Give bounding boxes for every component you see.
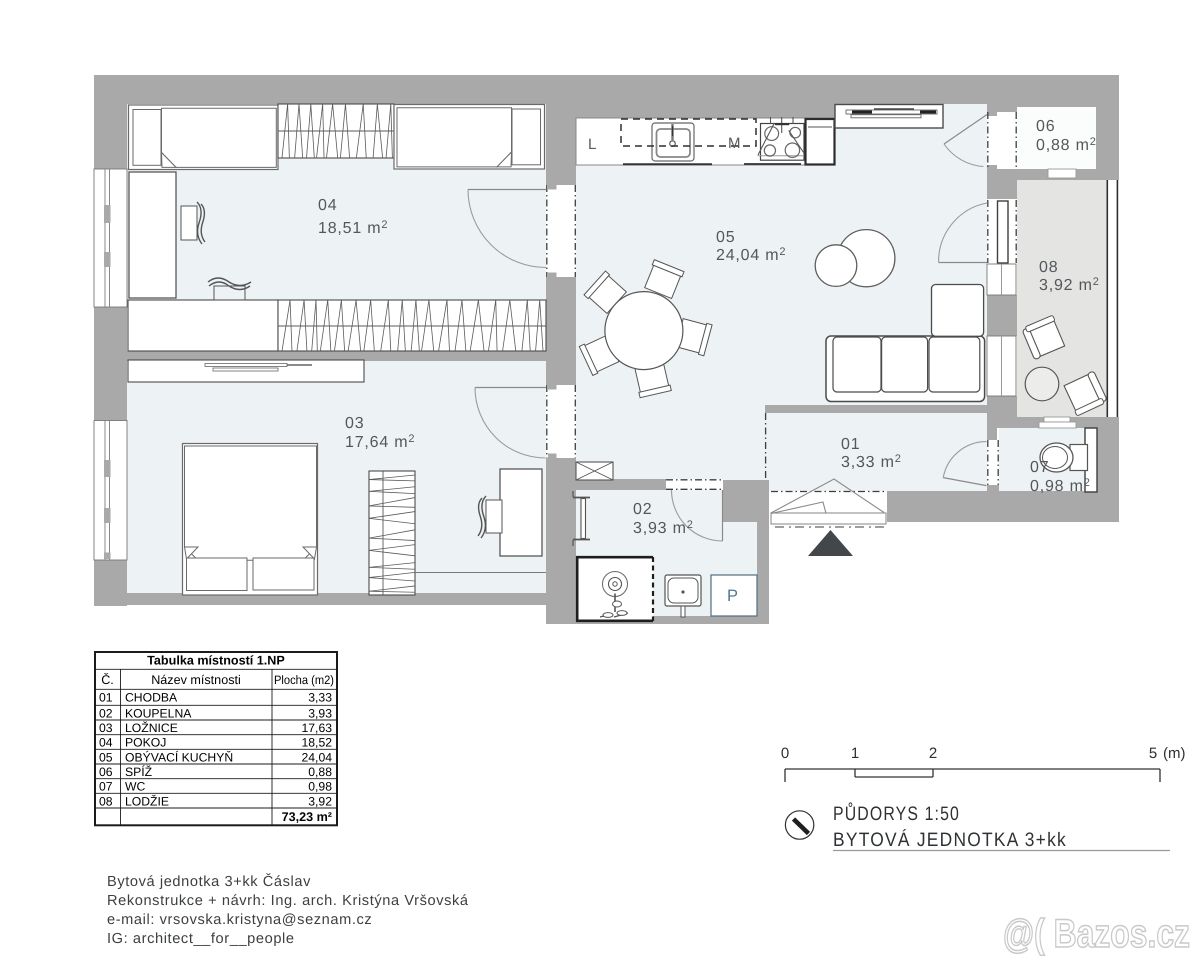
svg-text:@( Bazos.cz: @( Bazos.cz — [1003, 912, 1190, 956]
svg-text:5: 5 — [1149, 745, 1157, 762]
svg-text:3,92 m2: 3,92 m2 — [1039, 276, 1100, 294]
svg-text:3,92: 3,92 — [308, 794, 332, 808]
svg-text:0: 0 — [781, 745, 789, 762]
svg-text:17,64 m2: 17,64 m2 — [345, 433, 415, 451]
svg-text:3,93 m2: 3,93 m2 — [633, 519, 694, 537]
svg-text:P: P — [727, 587, 738, 605]
svg-text:Bytová jednotka 3+kk Čáslav: Bytová jednotka 3+kk Čáslav — [107, 873, 311, 890]
svg-text:1: 1 — [851, 745, 859, 762]
svg-text:0,88 m2: 0,88 m2 — [1036, 136, 1097, 154]
svg-text:03: 03 — [345, 415, 364, 432]
svg-text:3,93: 3,93 — [308, 706, 332, 720]
svg-text:04: 04 — [99, 736, 113, 750]
svg-text:17,63: 17,63 — [302, 721, 333, 735]
svg-text:18,51 m2: 18,51 m2 — [318, 219, 388, 237]
svg-text:03: 03 — [99, 721, 113, 735]
svg-text:KOUPELNA: KOUPELNA — [125, 706, 192, 720]
svg-text:24,04 m2: 24,04 m2 — [716, 246, 786, 264]
svg-text:24,04: 24,04 — [302, 750, 333, 764]
svg-text:06: 06 — [1036, 118, 1055, 135]
svg-text:WC: WC — [125, 780, 146, 794]
svg-text:73,23 m²: 73,23 m² — [282, 810, 332, 824]
svg-text:Tabulka místností 1.NP: Tabulka místností 1.NP — [147, 654, 285, 668]
svg-text:3,33: 3,33 — [308, 690, 332, 704]
svg-text:L: L — [588, 136, 596, 153]
svg-text:06: 06 — [99, 765, 113, 779]
svg-text:08: 08 — [1039, 259, 1058, 276]
svg-text:BYTOVÁ JEDNOTKA 3+kk: BYTOVÁ JEDNOTKA 3+kk — [833, 829, 1067, 851]
svg-text:02: 02 — [633, 501, 652, 518]
svg-text:02: 02 — [99, 706, 113, 720]
svg-text:Rekonstrukce + návrh: Ing. arc: Rekonstrukce + návrh: Ing. arch. Kristýn… — [107, 893, 469, 909]
svg-text:Plocha (m2): Plocha (m2) — [274, 673, 334, 687]
svg-text:IG: architect__for__people: IG: architect__for__people — [107, 931, 295, 947]
svg-text:POKOJ: POKOJ — [125, 736, 166, 750]
svg-text:01: 01 — [99, 690, 113, 704]
svg-text:08: 08 — [99, 794, 113, 808]
svg-text:0,88: 0,88 — [308, 765, 332, 779]
svg-text:SPÍŽ: SPÍŽ — [125, 765, 153, 779]
svg-text:2: 2 — [929, 745, 937, 762]
svg-text:0,98: 0,98 — [308, 780, 332, 794]
svg-text:CHODBA: CHODBA — [125, 690, 178, 704]
svg-text:05: 05 — [716, 229, 735, 246]
svg-text:01: 01 — [841, 436, 860, 453]
svg-text:04: 04 — [318, 197, 337, 214]
svg-text:3,33 m2: 3,33 m2 — [841, 453, 902, 471]
svg-text:OBÝVACÍ KUCHYŇ: OBÝVACÍ KUCHYŇ — [125, 750, 233, 764]
svg-text:PŮDORYS 1:50: PŮDORYS 1:50 — [833, 802, 960, 825]
svg-text:Č.: Č. — [101, 673, 114, 687]
svg-text:LOŽNICE: LOŽNICE — [125, 721, 178, 735]
svg-text:(m): (m) — [1163, 745, 1186, 762]
svg-text:Název místnosti: Název místnosti — [151, 673, 241, 687]
svg-text:e-mail: vrsovska.kristyna@sezn: e-mail: vrsovska.kristyna@seznam.cz — [107, 912, 372, 928]
svg-text:18,52: 18,52 — [302, 736, 333, 750]
svg-text:05: 05 — [99, 750, 113, 764]
svg-text:07: 07 — [99, 780, 113, 794]
svg-text:0,98 m2: 0,98 m2 — [1030, 477, 1091, 495]
svg-text:LODŽIE: LODŽIE — [125, 794, 169, 808]
svg-text:M: M — [728, 135, 741, 152]
svg-text:07: 07 — [1030, 459, 1049, 476]
